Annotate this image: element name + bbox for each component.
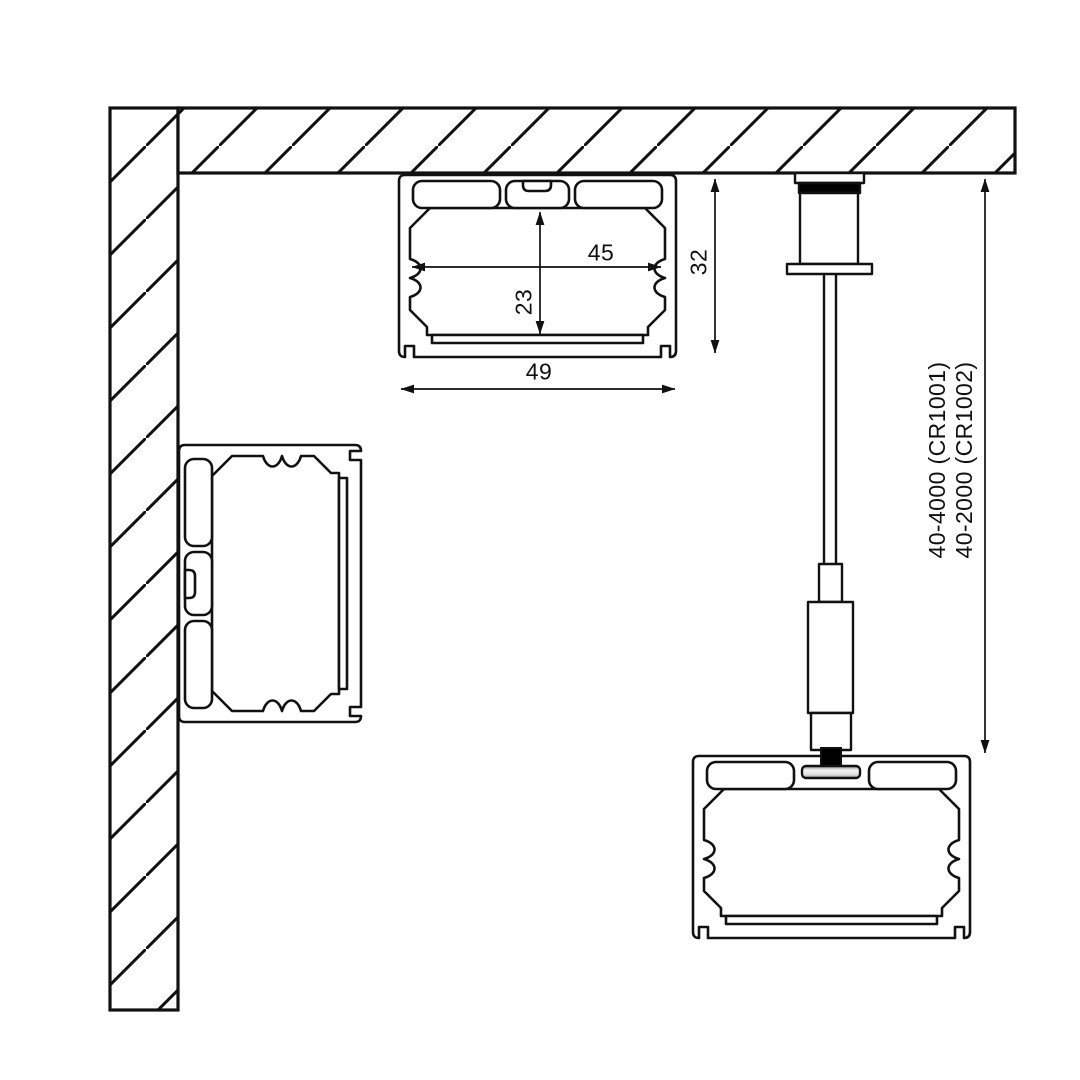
dim-label-mounted-height: 32: [686, 249, 713, 276]
suspended-profile: [693, 756, 970, 938]
wall-section: [110, 108, 178, 1010]
dim-label-inner-height: 23: [511, 289, 538, 316]
suspension-length-line2: 40-2000 (CR1002): [951, 362, 978, 559]
suspension-length-label: 40-4000 (CR1001) 40-2000 (CR1002): [924, 362, 978, 559]
canopy-plate: [795, 173, 864, 183]
suspension-length-line1: 40-4000 (CR1001): [924, 362, 951, 559]
ceiling-section: [178, 108, 1015, 173]
diagram-linework: [0, 0, 1080, 1080]
gripper-body-upper: [808, 602, 853, 713]
fastener-bolt: [821, 748, 841, 767]
suspension-cable-set: [787, 173, 872, 750]
wall-mounted-profile: [179, 445, 361, 722]
gripper-neck: [819, 564, 842, 602]
ceiling-mounted-profile: [399, 175, 676, 357]
canopy-flange: [787, 264, 872, 274]
gripper-body-lower: [811, 713, 851, 750]
diagram-canvas: 45 23 49 32 40-4000 (CR1001) 40-2000 (CR…: [0, 0, 1080, 1080]
canopy-ring: [799, 183, 860, 193]
suspension-wire: [824, 272, 836, 568]
canopy-barrel: [800, 193, 858, 264]
fastener-disc: [802, 766, 860, 778]
dim-label-inner-width: 45: [588, 240, 615, 267]
dim-label-outer-width: 49: [526, 359, 553, 386]
